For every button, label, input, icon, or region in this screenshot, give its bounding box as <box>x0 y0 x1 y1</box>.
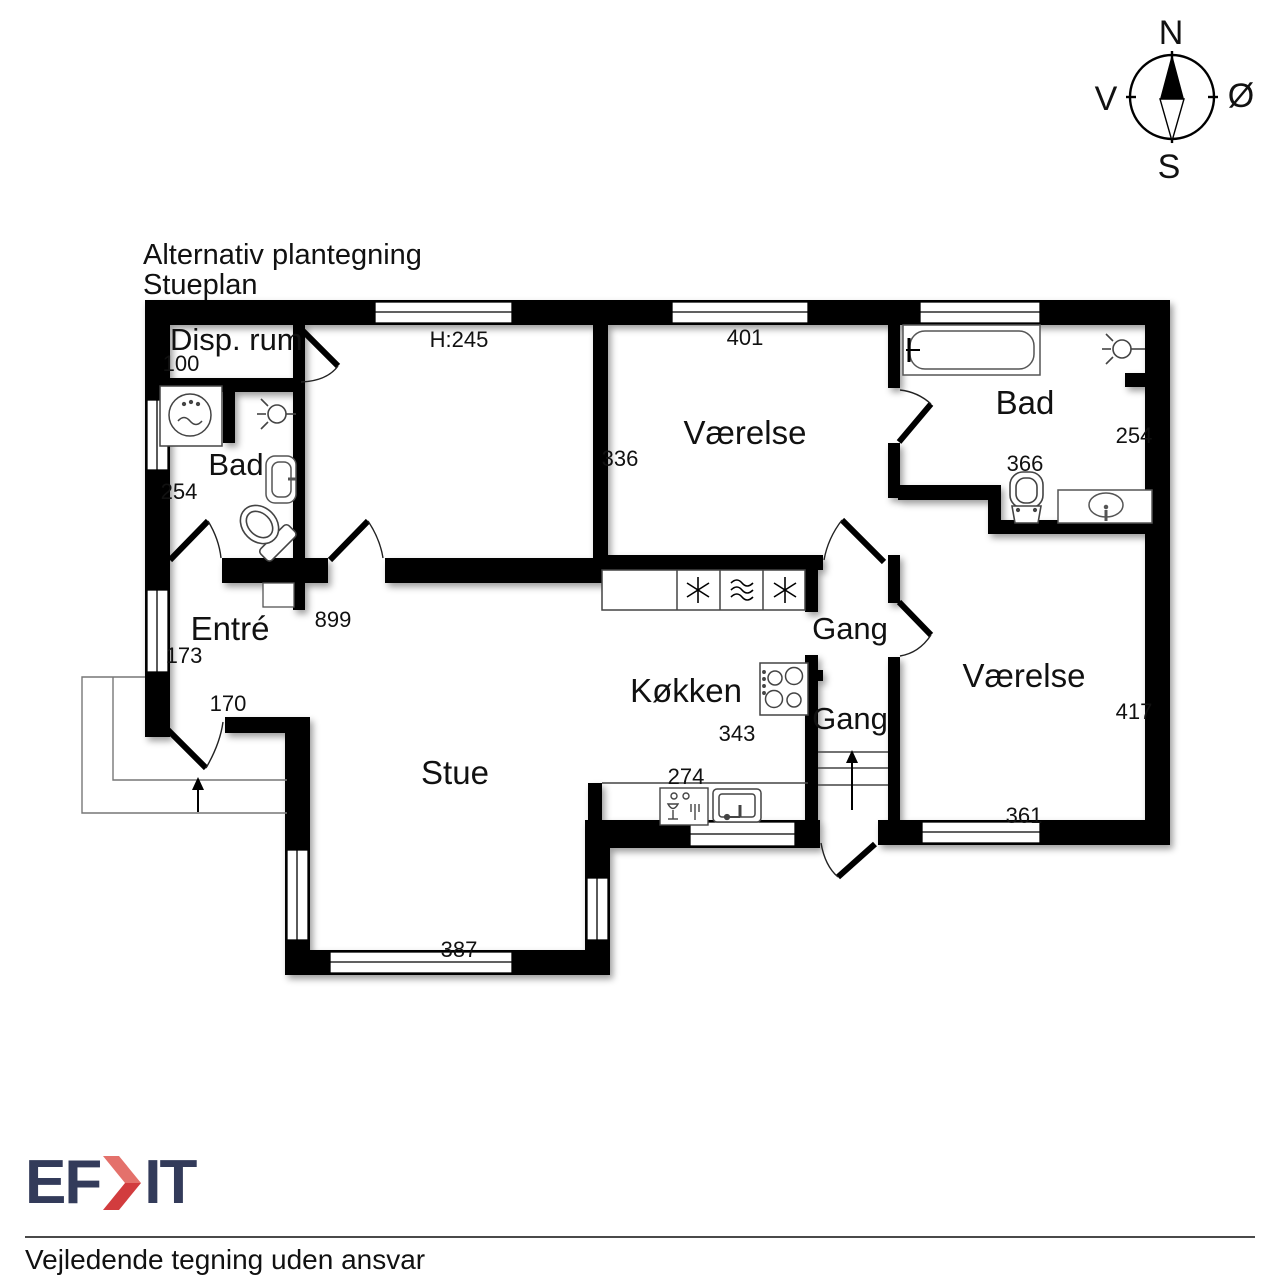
cabinet <box>263 583 294 607</box>
compass-west-label: V <box>1095 80 1118 118</box>
compass-rose-icon <box>1126 51 1218 143</box>
door-swing-icon <box>824 520 884 562</box>
footer-divider <box>25 1236 1255 1238</box>
door-swing-icon <box>170 521 221 560</box>
meas-entre-door: 170 <box>210 691 247 716</box>
appliance-counter <box>602 570 805 610</box>
room-label-bad-left: Bad <box>208 447 263 482</box>
sink-icon <box>266 456 296 503</box>
meas-vaerelse-mid-w: 401 <box>727 325 764 350</box>
window-icon <box>920 302 1040 323</box>
sink-icon <box>1058 490 1152 523</box>
meas-kokken-w: 274 <box>668 764 705 789</box>
window-icon <box>287 850 308 940</box>
meas-ceiling-height: H:245 <box>430 327 489 352</box>
meas-entre-wall: 899 <box>315 607 352 632</box>
meas-entre-h: 173 <box>166 643 203 668</box>
floorplan-svg: N S V Ø <box>0 0 1280 1280</box>
stove-icon <box>760 663 808 715</box>
meas-bad-right-h: 254 <box>1116 423 1153 448</box>
room-label-kokken: Køkken <box>630 672 742 709</box>
toilet-icon <box>231 496 298 563</box>
meas-vaerelse-right-h: 417 <box>1116 699 1153 724</box>
compass-south-label: S <box>1158 148 1181 186</box>
meas-kokken-h: 343 <box>719 721 756 746</box>
compass-east-label: Ø <box>1228 77 1254 115</box>
meas-disp-rum: 100 <box>163 351 200 376</box>
washing-machine-icon <box>160 386 222 446</box>
meas-vaerelse-mid-h: 336 <box>602 446 639 471</box>
toilet-icon <box>1010 472 1043 523</box>
ceiling-lamp-icon <box>257 399 296 429</box>
meas-stue-w: 387 <box>441 937 478 962</box>
entry-arrow-icon <box>192 777 204 812</box>
efkit-logo: EF IT <box>25 1152 195 1214</box>
floorplan-page: Alternativ plantegning Stueplan N S V Ø <box>0 0 1280 1280</box>
room-label-bad-right: Bad <box>996 384 1055 421</box>
room-label-stue: Stue <box>421 754 489 791</box>
room-label-gang-upper: Gang <box>812 611 888 646</box>
room-label-vaerelse-right: Værelse <box>963 657 1086 694</box>
window-icon <box>587 878 608 940</box>
room-label-vaerelse-mid: Værelse <box>684 414 807 451</box>
logo-chevron-icon <box>101 1156 143 1210</box>
door-swing-icon <box>899 602 931 656</box>
bathtub-icon <box>903 325 1040 375</box>
meas-vaerelse-right-w: 361 <box>1006 803 1043 828</box>
door-swing-icon <box>330 521 383 560</box>
window-icon <box>375 302 512 323</box>
kitchen-sink-icon <box>713 789 761 822</box>
logo-text-left: EF <box>25 1154 100 1212</box>
window-icon <box>672 302 808 323</box>
stairs-up-icon <box>818 750 888 810</box>
door-swing-icon <box>821 843 875 877</box>
window-icon <box>330 952 512 973</box>
door-swing-icon <box>899 390 931 442</box>
compass-north-label: N <box>1159 14 1184 52</box>
ceiling-lamp-icon <box>1102 334 1145 364</box>
dishwasher-icon <box>660 788 708 825</box>
meas-bad-right-w: 366 <box>1007 451 1044 476</box>
door-swing-icon <box>168 722 223 768</box>
disclaimer-text: Vejledende tegning uden ansvar <box>25 1244 425 1276</box>
room-label-gang-lower: Gang <box>812 701 888 736</box>
logo-text-right: IT <box>144 1154 195 1212</box>
room-label-entre: Entré <box>191 610 270 647</box>
meas-bad-left: 254 <box>161 479 198 504</box>
